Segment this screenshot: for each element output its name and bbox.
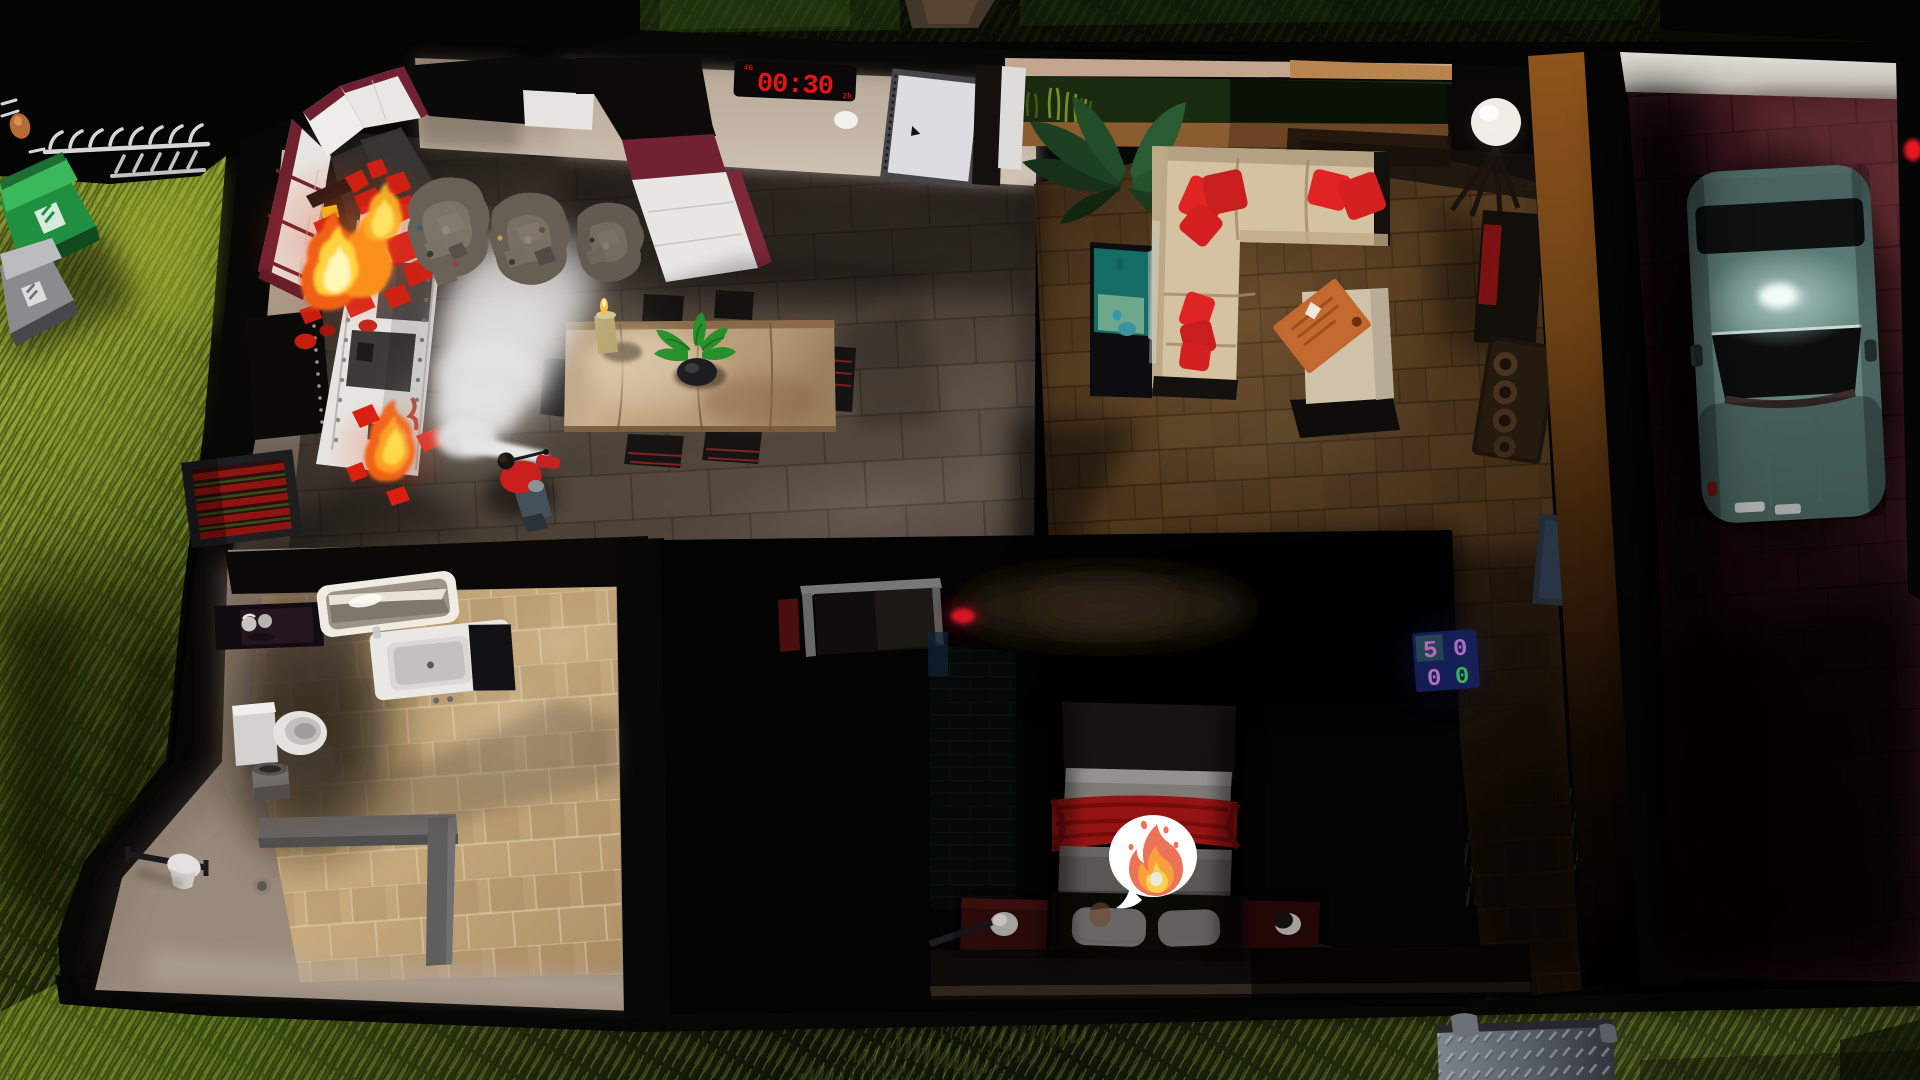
svg-text:46: 46 <box>743 64 753 73</box>
svg-text:2b: 2b <box>842 92 852 101</box>
svg-text:00:30: 00:30 <box>756 69 833 102</box>
